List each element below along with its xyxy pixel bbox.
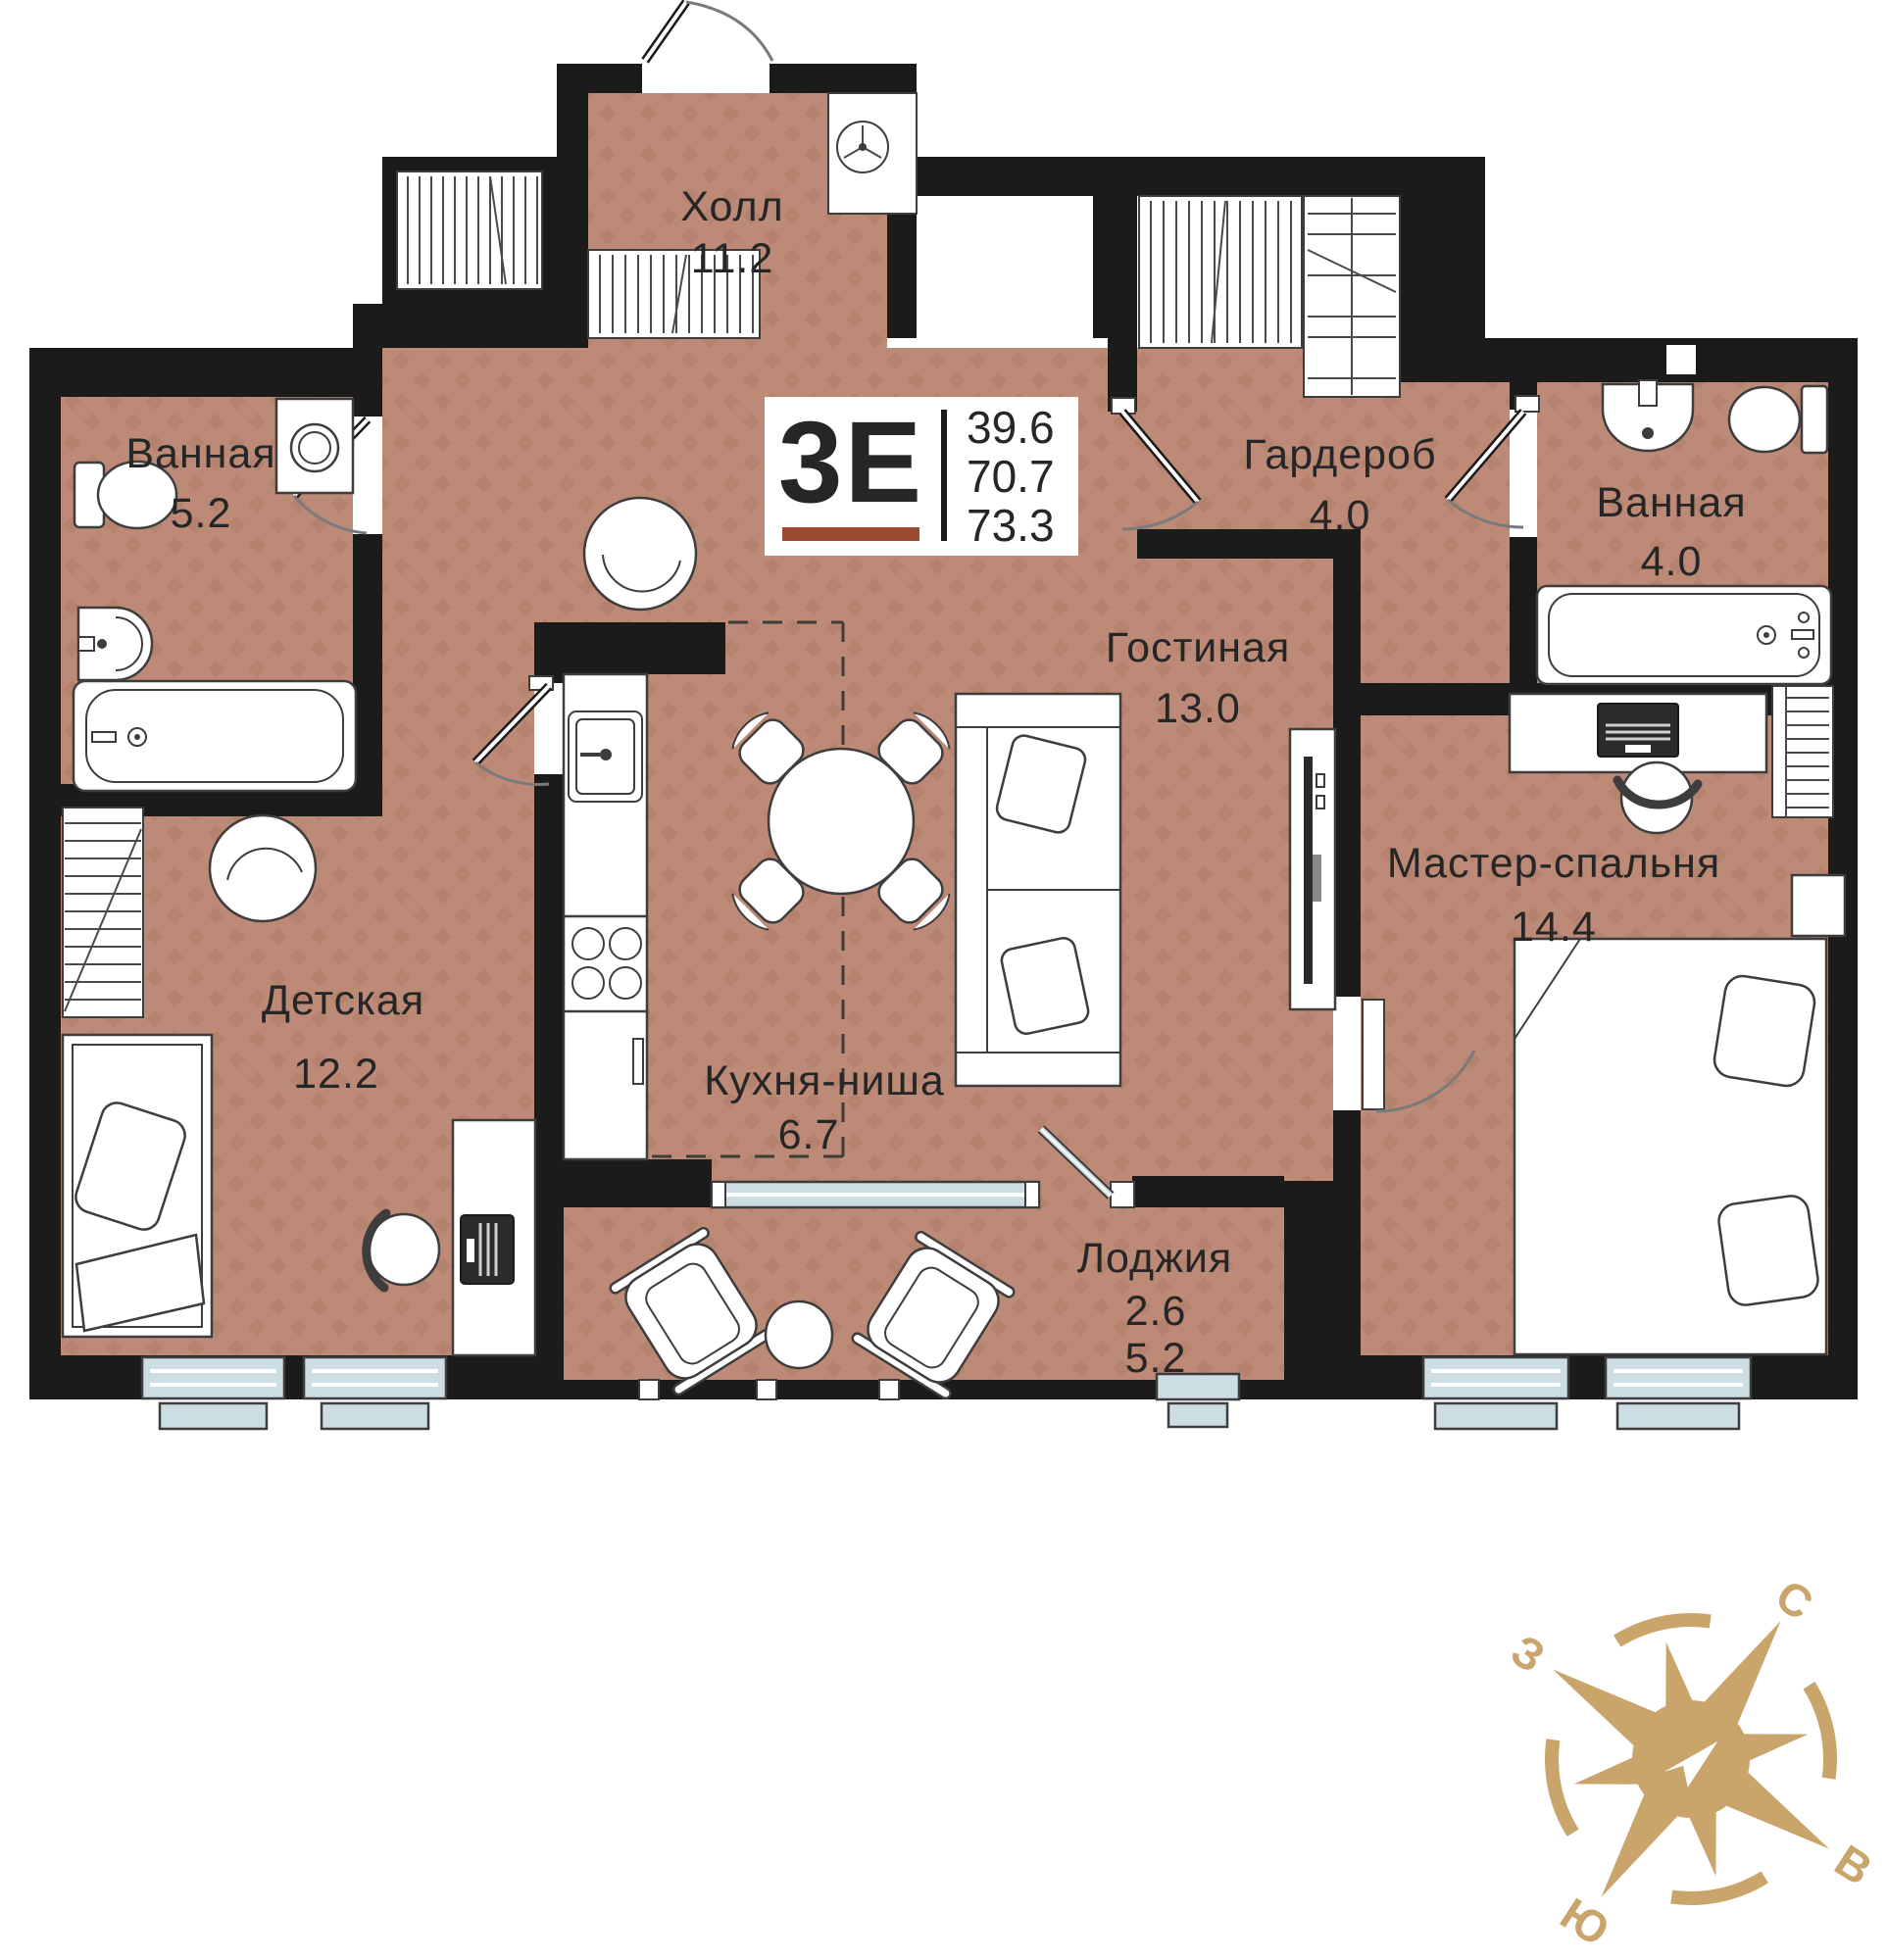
kids-closet	[63, 808, 143, 1017]
loggia-table	[766, 1301, 832, 1368]
master-nightstand	[1792, 875, 1845, 936]
compass-rose: С В Ю З	[1397, 1465, 1887, 1960]
unit-type-label: 3Е	[778, 398, 923, 527]
hall-closet-1	[397, 171, 542, 289]
vent-notch	[1666, 345, 1696, 374]
room-label-wardrobe: Гардероб	[1243, 431, 1436, 478]
room-area-bathroom-right: 4.0	[1641, 538, 1703, 585]
compass-east-label: В	[1826, 1835, 1881, 1895]
unit-area-living: 39.6	[967, 402, 1055, 453]
room-label-bathroom-right: Ванная	[1596, 479, 1746, 526]
unit-area-main: 70.7	[967, 451, 1055, 502]
room-label-bathroom-left: Ванная	[125, 430, 275, 477]
room-label-loggia: Лоджия	[1077, 1235, 1232, 1282]
toilet-right	[1729, 386, 1827, 453]
loggia-glazing	[712, 1182, 1039, 1207]
kids-pouf	[210, 815, 316, 921]
master-desk	[1510, 694, 1766, 772]
kids-window-2	[304, 1357, 446, 1429]
master-shelving	[1772, 686, 1833, 817]
entry-shaft	[828, 93, 917, 214]
room-area-hall: 11.2	[691, 235, 774, 282]
room-area-bathroom-left: 5.2	[171, 490, 232, 537]
bathtub-left	[74, 681, 356, 791]
sofa	[956, 694, 1120, 1086]
room-area-loggia: 2.6	[1125, 1288, 1187, 1335]
kids-bed	[63, 1035, 212, 1337]
room-area-kids: 12.2	[293, 1051, 379, 1098]
title-accent-bar	[782, 527, 919, 541]
master-bed	[1515, 939, 1826, 1354]
kids-desk	[453, 1120, 535, 1355]
room-label-kids: Детская	[262, 977, 424, 1024]
room-label-hall: Холл	[680, 183, 783, 230]
sink-right	[1603, 380, 1693, 451]
compass-west-label: З	[1503, 1625, 1554, 1683]
wardrobe-shelving	[1304, 196, 1400, 397]
room-label-master: Мастер-спальня	[1387, 840, 1720, 887]
room-area-kitchen: 6.7	[778, 1111, 840, 1158]
hall-round-pouf	[584, 498, 696, 610]
master-window-1	[1423, 1357, 1568, 1429]
floorplan-svg: Холл 11.2 Ванная 5.2 Гардероб 4.0 Ванная…	[0, 0, 1887, 1960]
tv-console	[1290, 729, 1335, 1009]
washing-machine	[276, 399, 353, 493]
bathtub-right	[1537, 586, 1831, 684]
sink-left	[78, 608, 152, 680]
room-label-kitchen: Кухня-ниша	[704, 1057, 945, 1104]
room-area-loggia-total: 5.2	[1125, 1335, 1187, 1382]
room-area-wardrobe: 4.0	[1310, 492, 1371, 539]
title-divider	[941, 410, 947, 541]
room-area-living: 13.0	[1155, 685, 1241, 732]
kitchen-counter	[564, 674, 647, 1159]
unit-area-total: 73.3	[967, 500, 1055, 551]
compass-north-label: С	[1767, 1569, 1822, 1630]
room-area-master: 14.4	[1511, 904, 1597, 951]
wardrobe-closet-hatched	[1139, 196, 1302, 348]
entrance-door	[642, 2, 772, 93]
master-window-2	[1606, 1357, 1751, 1429]
kids-desk-chair	[367, 1213, 439, 1288]
compass-south-label: Ю	[1552, 1887, 1618, 1955]
floorplan-page: Холл 11.2 Ванная 5.2 Гардероб 4.0 Ванная…	[0, 0, 1887, 1960]
room-floor-passage	[1361, 627, 1510, 683]
unit-title-card: 3Е 39.6 70.7 73.3	[765, 397, 1078, 556]
room-label-living: Гостиная	[1106, 624, 1290, 671]
kids-window-1	[142, 1357, 284, 1429]
